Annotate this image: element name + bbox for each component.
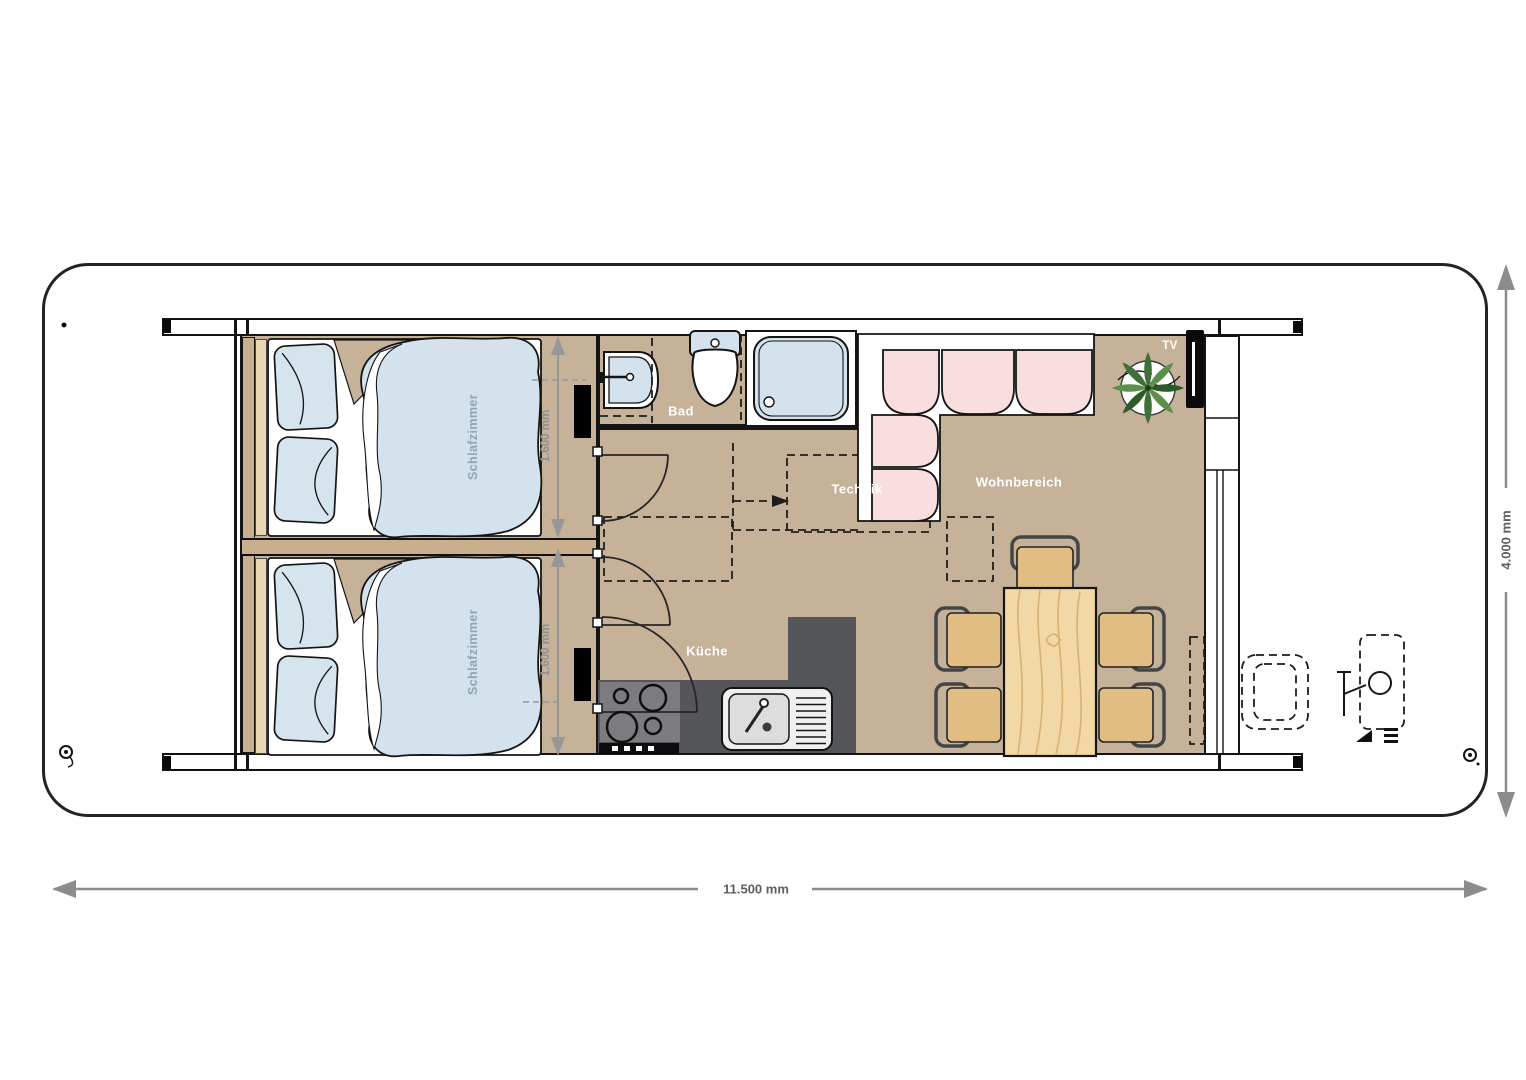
dimension-bedroom2-width: 1.600 mm: [540, 624, 552, 676]
tv-screen-line: [1192, 342, 1195, 396]
tv-unit: [1186, 330, 1204, 408]
bow-bulkhead-wall: [234, 318, 237, 771]
room-label-living: Wohnbereich: [976, 475, 1063, 490]
bathroom-bottom-wall: [598, 424, 860, 430]
bathroom-right-wall: [855, 335, 860, 430]
room-label-kitchen: Küche: [686, 644, 728, 659]
room-label-bedroom2: Schlafzimmer: [466, 609, 480, 695]
glass-door-wall: [1204, 335, 1240, 755]
wardrobe-block-1: [574, 385, 591, 438]
dimension-overall-length: 11.500 mm: [716, 882, 796, 897]
room-label-bedroom1: Schlafzimmer: [466, 394, 480, 480]
room-label-tv: TV: [1162, 340, 1178, 352]
bed2-headboard: [255, 558, 267, 754]
walkway-bottom: [162, 753, 1303, 771]
cooktop-panel: [600, 682, 680, 742]
bedroom-divider-wall: [242, 538, 599, 556]
floorplan-canvas: Schlafzimmer Schlafzimmer Bad Technik Kü…: [0, 0, 1526, 1080]
dimension-bedroom1-width: 1.600 mm: [540, 410, 552, 462]
kitchen-counter-side: [788, 617, 856, 683]
cooktop-controls: [599, 743, 679, 754]
dimension-overall-width: 4.000 mm: [1499, 503, 1514, 576]
room-label-technik: Technik: [832, 482, 883, 497]
wardrobe-block-2: [574, 648, 591, 701]
bed1-headboard: [255, 339, 267, 536]
room-label-bathroom: Bad: [668, 404, 694, 419]
